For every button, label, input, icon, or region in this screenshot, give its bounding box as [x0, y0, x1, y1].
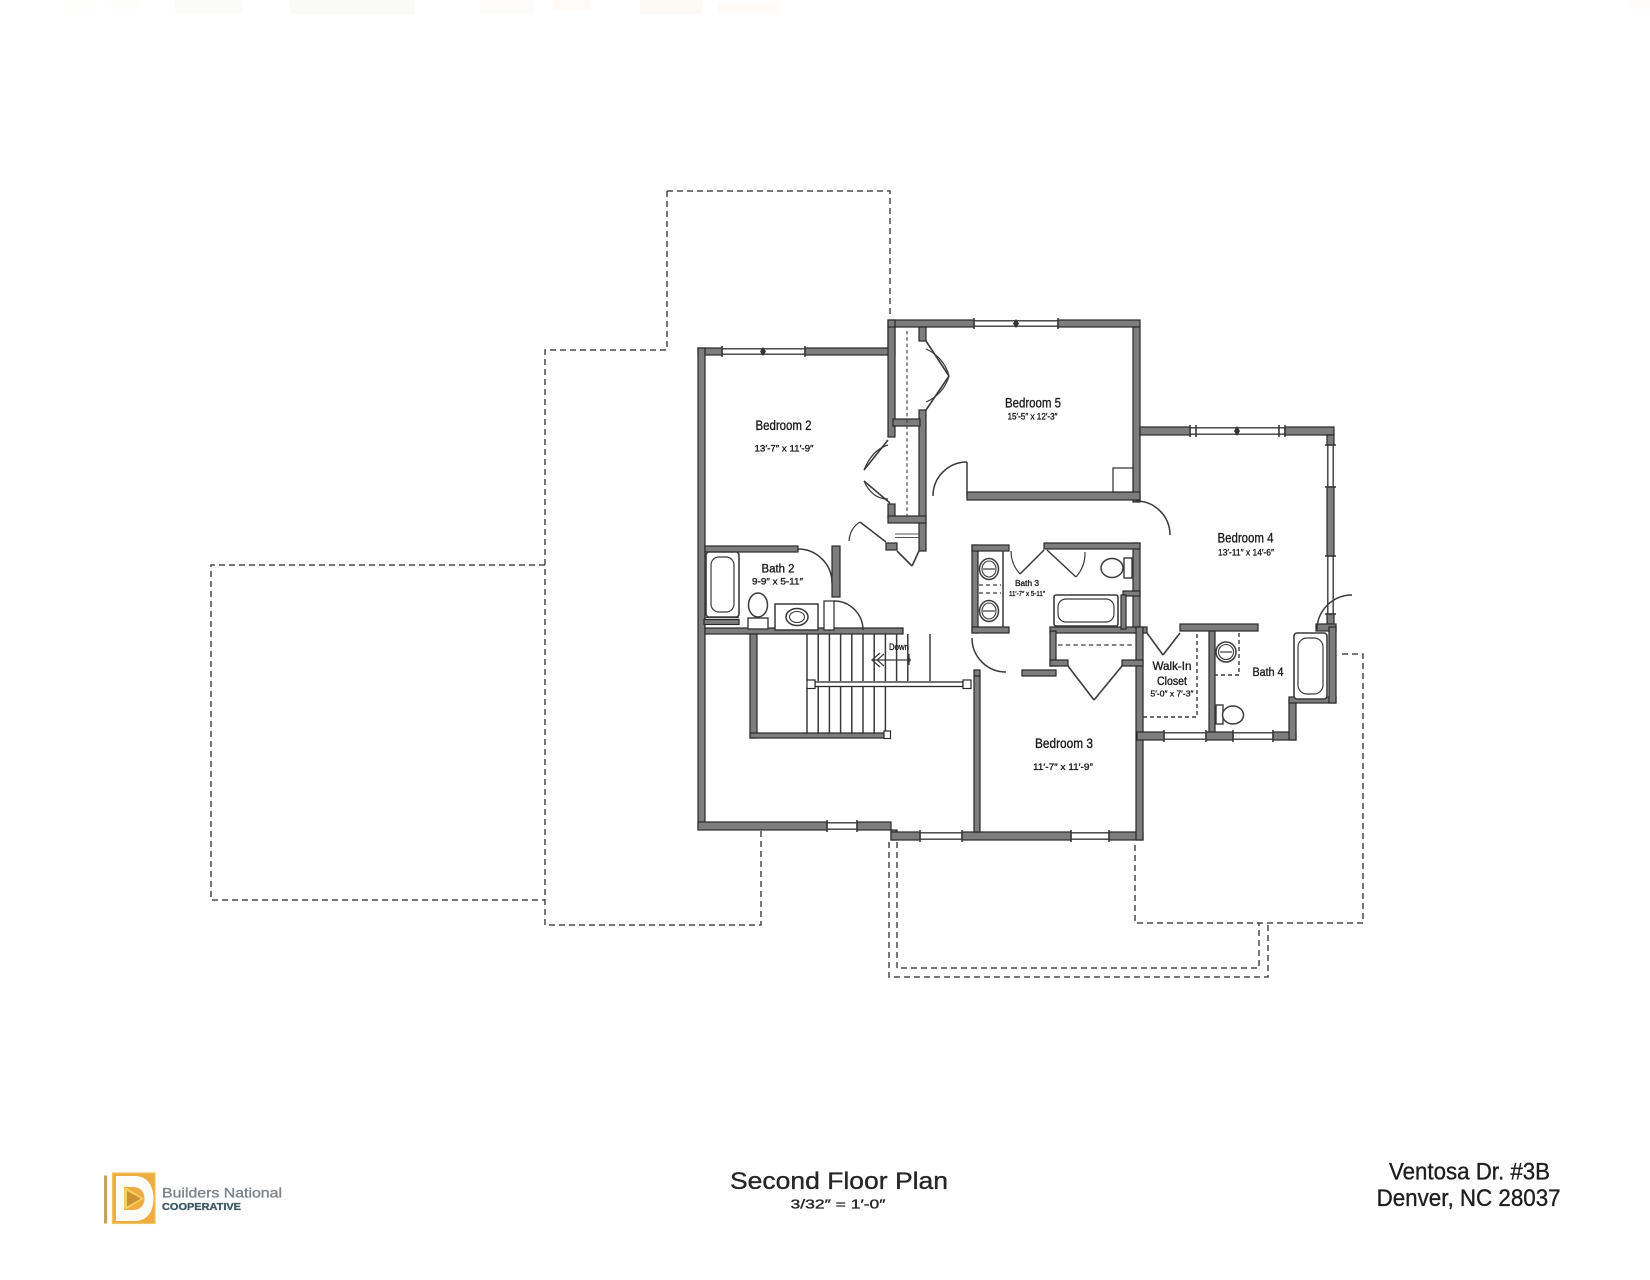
- svg-text:Bedroom 5: Bedroom 5: [1005, 395, 1061, 411]
- svg-text:Second Floor Plan: Second Floor Plan: [730, 1168, 948, 1195]
- svg-text:3/32″ = 1′-0″: 3/32″ = 1′-0″: [791, 1197, 887, 1212]
- svg-text:Bedroom 3: Bedroom 3: [1035, 735, 1093, 751]
- svg-text:Bedroom 4: Bedroom 4: [1218, 530, 1274, 546]
- svg-text:13′-11″ x 14′-6″: 13′-11″ x 14′-6″: [1218, 548, 1275, 559]
- svg-text:Builders National: Builders National: [162, 1185, 282, 1201]
- svg-text:Walk-In: Walk-In: [1153, 659, 1192, 673]
- svg-text:13′-7″ x 11′-9″: 13′-7″ x 11′-9″: [755, 444, 815, 455]
- svg-text:Bedroom 2: Bedroom 2: [756, 417, 812, 433]
- svg-text:15′-5″ x 12′-3″: 15′-5″ x 12′-3″: [1008, 412, 1059, 423]
- svg-text:Ventosa Dr. #3B: Ventosa Dr. #3B: [1389, 1159, 1550, 1186]
- svg-text:Down: Down: [889, 642, 909, 652]
- svg-text:COOPERATIVE: COOPERATIVE: [162, 1201, 241, 1213]
- svg-text:Bath 4: Bath 4: [1253, 667, 1285, 679]
- svg-text:9-9″ x 5-11″: 9-9″ x 5-11″: [752, 577, 804, 588]
- svg-text:Bath 3: Bath 3: [1015, 578, 1039, 588]
- svg-text:Denver, NC 28037: Denver, NC 28037: [1377, 1185, 1561, 1212]
- svg-text:Closet: Closet: [1157, 674, 1188, 688]
- svg-text:5′-0″ x 7′-3″: 5′-0″ x 7′-3″: [1151, 689, 1194, 699]
- svg-text:11′-7″ x 5-11″: 11′-7″ x 5-11″: [1009, 591, 1045, 598]
- svg-text:11′-7″ x 11′-9″: 11′-7″ x 11′-9″: [1033, 762, 1094, 773]
- svg-text:Bath 2: Bath 2: [762, 564, 795, 576]
